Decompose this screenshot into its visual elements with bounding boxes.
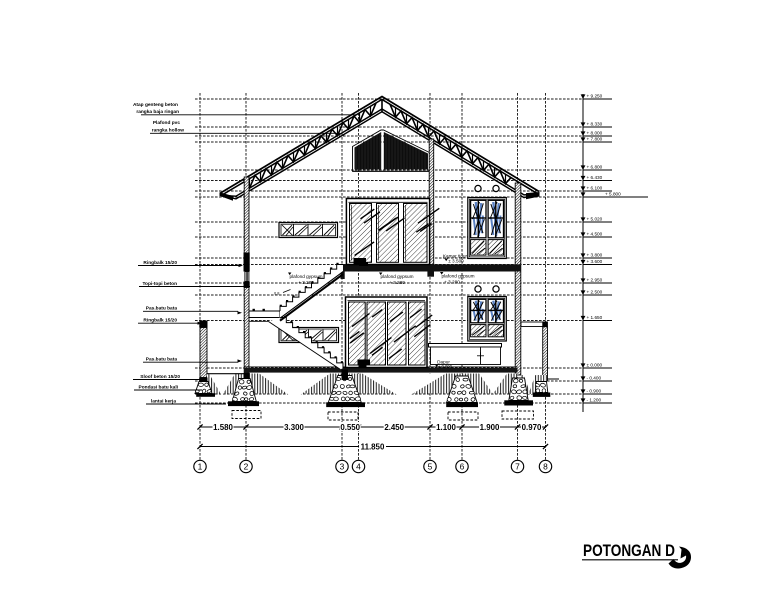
- svg-text:+ 7.800: + 7.800: [587, 137, 603, 142]
- svg-text:+ 6.100: + 6.100: [587, 186, 603, 191]
- svg-text:1.580: 1.580: [213, 423, 233, 432]
- svg-text:+ 3.280: + 3.280: [444, 280, 460, 285]
- svg-text:plafond gypsum: plafond gypsum: [289, 274, 322, 279]
- svg-text:+ 9.250: + 9.250: [587, 94, 603, 99]
- svg-text:Topi-topi beton: Topi-topi beton: [142, 281, 177, 287]
- svg-text:11.850: 11.850: [361, 443, 385, 452]
- svg-text:4: 4: [356, 462, 361, 472]
- svg-text:+ 5.020: + 5.020: [587, 217, 603, 222]
- svg-text:- 0.400: - 0.400: [587, 376, 602, 381]
- svg-text:Ringbalk 15/20: Ringbalk 15/20: [143, 260, 177, 266]
- svg-text:3: 3: [340, 462, 345, 472]
- svg-text:+ 6.800: + 6.800: [587, 165, 603, 170]
- svg-text:0.8: 0.8: [274, 291, 279, 296]
- svg-text:+ 8.000: + 8.000: [587, 131, 603, 136]
- svg-text:Pas.batu bata: Pas.batu bata: [146, 306, 178, 312]
- svg-text:+ 4.500: + 4.500: [587, 232, 603, 237]
- svg-text:1: 1: [198, 462, 203, 472]
- svg-text:7: 7: [515, 462, 520, 472]
- svg-text:± 3.500: ± 3.500: [448, 259, 464, 264]
- svg-text:- 0.900: - 0.900: [587, 389, 602, 394]
- svg-text:plafond gypsum: plafond gypsum: [380, 274, 413, 279]
- svg-text:1.900: 1.900: [480, 423, 500, 432]
- svg-text:plafond gypsum: plafond gypsum: [441, 274, 474, 279]
- svg-text:rangka hollow: rangka hollow: [152, 128, 185, 134]
- svg-text:+ 3.600: + 3.600: [587, 259, 603, 264]
- svg-text:0.970: 0.970: [522, 423, 542, 432]
- svg-text:Sloof beton 15/20: Sloof beton 15/20: [140, 374, 180, 380]
- svg-text:- 1.200: - 1.200: [587, 398, 602, 403]
- svg-text:+ 2.950: + 2.950: [587, 278, 603, 283]
- svg-text:lantai kerja: lantai kerja: [151, 398, 176, 404]
- svg-text:2.450: 2.450: [384, 423, 404, 432]
- svg-text:5: 5: [428, 462, 433, 472]
- svg-text:rangka baja ringan: rangka baja ringan: [136, 109, 179, 115]
- svg-text:+ 8.330: + 8.330: [587, 122, 603, 127]
- svg-text:+ 2.500: + 2.500: [587, 290, 603, 295]
- svg-text:Plafond pvc: Plafond pvc: [153, 120, 181, 126]
- svg-text:+ 3.280: + 3.280: [389, 280, 405, 285]
- svg-text:+ 1.650: + 1.650: [587, 315, 603, 320]
- svg-text:± 0.000: ± 0.000: [587, 363, 603, 368]
- svg-text:Pas.batu bata: Pas.batu bata: [146, 357, 178, 363]
- svg-text:Ringbalk 15/20: Ringbalk 15/20: [143, 318, 177, 324]
- svg-text:0.550: 0.550: [340, 423, 360, 432]
- svg-text:2: 2: [244, 462, 249, 472]
- svg-text:+ 6.430: + 6.430: [587, 175, 603, 180]
- svg-text:+ 5.800: + 5.800: [605, 192, 621, 197]
- svg-text:+ 3.800: + 3.800: [587, 253, 603, 258]
- svg-text:± 0.000: ± 0.000: [438, 364, 453, 369]
- svg-text:8: 8: [543, 462, 548, 472]
- svg-text:+ 3.280: + 3.280: [298, 280, 314, 285]
- svg-text:1.100: 1.100: [436, 423, 456, 432]
- svg-text:6: 6: [460, 462, 465, 472]
- svg-text:Atap genteng beton: Atap genteng beton: [133, 102, 178, 108]
- svg-text:POTONGAN D: POTONGAN D: [583, 542, 675, 560]
- svg-text:Pondasi batu kali: Pondasi batu kali: [139, 384, 178, 390]
- svg-text:3.300: 3.300: [284, 423, 304, 432]
